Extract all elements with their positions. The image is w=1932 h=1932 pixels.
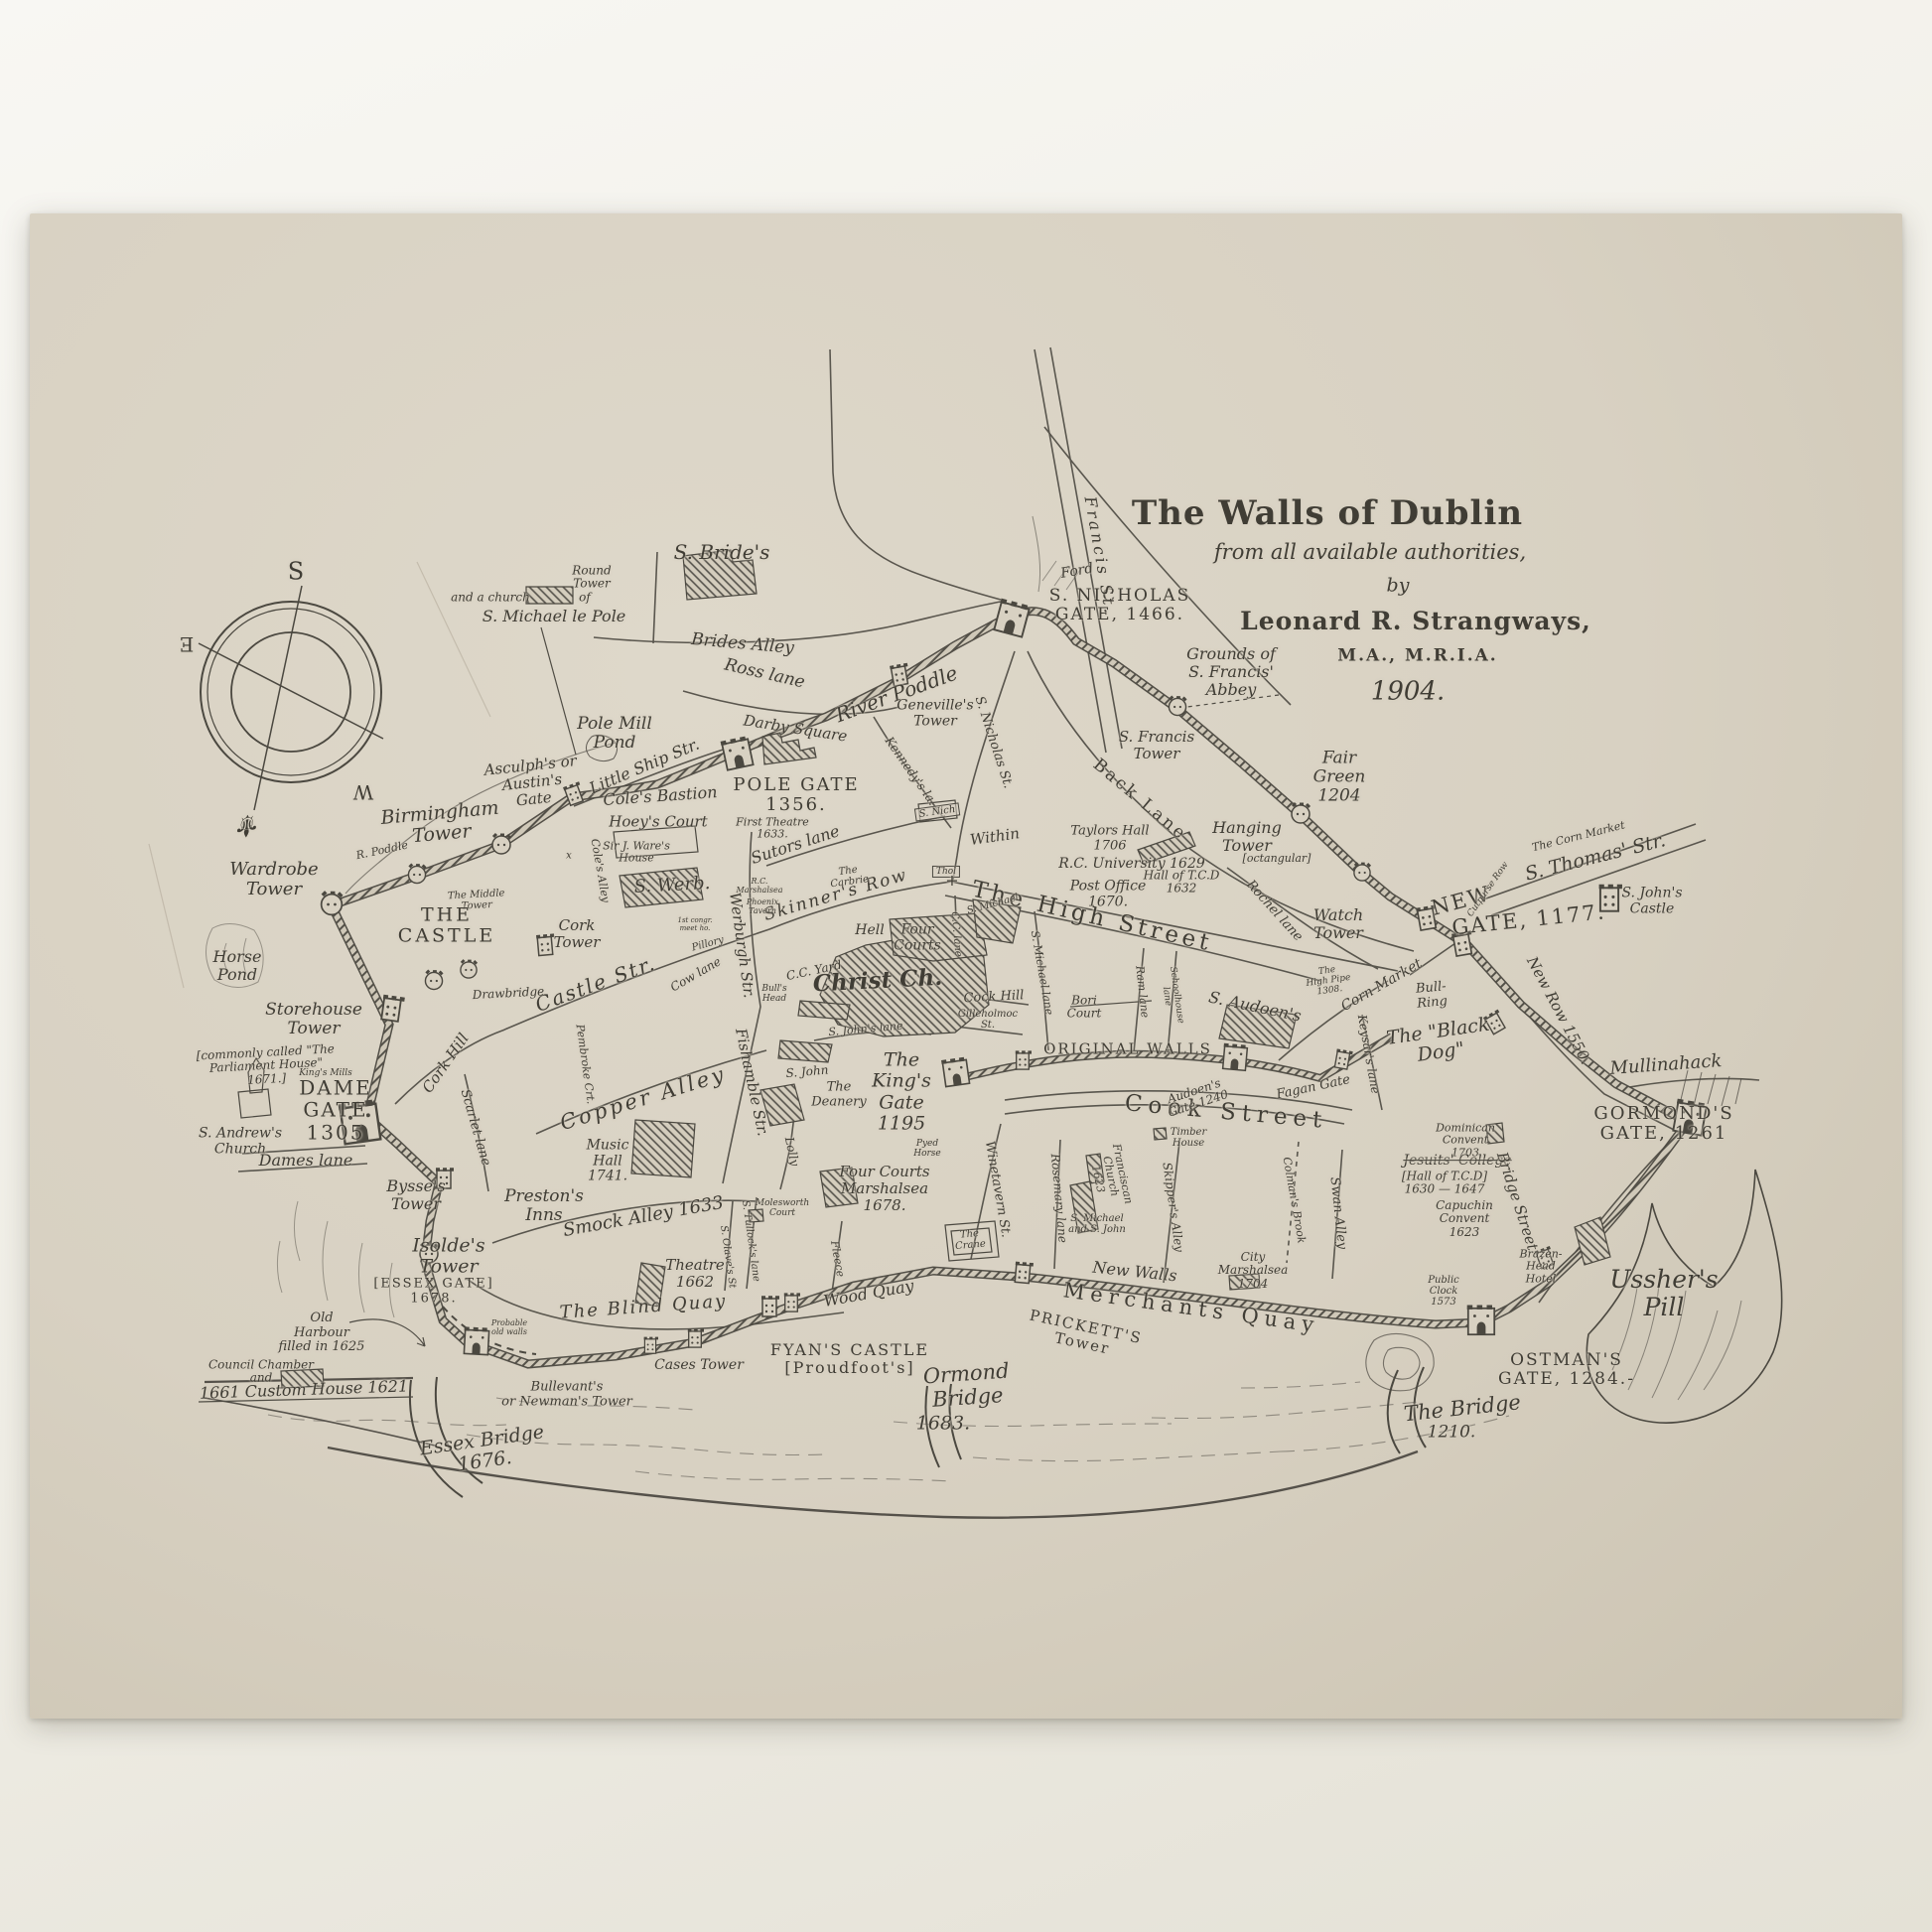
label-pillory: Pillory xyxy=(691,934,726,953)
label-schoolhouse-lane: Schoolhouse lane xyxy=(1158,966,1185,1026)
label-swan-alley: Swan Alley xyxy=(1326,1176,1348,1250)
label-bridge-street: Bridge Street xyxy=(1493,1150,1541,1252)
label-wood-quay: Wood Quay xyxy=(822,1277,915,1311)
label-parliament-house: [commonly called "The Parliament House" … xyxy=(196,1042,336,1090)
label-cork-hill: Cork Hill xyxy=(419,1031,472,1096)
label-the-deanery: The Deanery xyxy=(811,1080,867,1109)
label-fagan-gate: Fagan Gate xyxy=(1276,1073,1352,1103)
label-hanging-tower: Hanging Tower xyxy=(1212,819,1282,855)
label-rosemary-lane: Rosemary lane xyxy=(1047,1153,1068,1243)
label-pembroke-crt: Pembroke Crt. xyxy=(573,1024,596,1105)
label-s-nicholas-gate: S. NICHOLAS GATE, 1466. xyxy=(1049,587,1190,624)
label-s-nich: S. Nich xyxy=(914,802,960,821)
label-the-castle: THE CASTLE xyxy=(398,905,495,948)
label-probable-walls: Probable old walls xyxy=(491,1319,527,1337)
label-rochel-lane: Rochel lane xyxy=(1243,878,1305,944)
label-of: of xyxy=(579,591,591,604)
label-fair-green: Fair Green 1204 xyxy=(1313,749,1366,805)
label-s-john: S. John xyxy=(785,1063,829,1080)
label-wardrobe-tower: Wardrobe Tower xyxy=(229,860,318,899)
label-ushers-pill: Ussher's Pill xyxy=(1609,1266,1718,1321)
label-round-tower: Round Tower xyxy=(572,565,611,592)
fleur-de-lis-icon: ⚜ xyxy=(233,805,265,843)
label-essex-gate: [ESSEX GATE] 1678. xyxy=(373,1277,493,1306)
label-bull-ring: Bull- Ring xyxy=(1415,980,1448,1012)
label-s-michael-lane: S. Michael lane xyxy=(1028,930,1054,1017)
label-bulls-head: Bull's Head xyxy=(761,984,786,1004)
label-grounds-abbey: Grounds of S. Francis' Abbey xyxy=(1186,645,1276,699)
label-cork-tower: Cork Tower xyxy=(554,917,601,951)
label-franciscan-church: Franciscan Church 1623 xyxy=(1086,1143,1135,1210)
label-storehouse-tower: Storehouse Tower xyxy=(265,1001,362,1038)
label-taylors-hall: Taylors Hall 1706 xyxy=(1070,824,1149,853)
label-x-mark: x xyxy=(566,850,572,861)
label-s-michael-and-john: S. Michael and S. John xyxy=(1068,1213,1126,1235)
label-four-courts: Four Courts xyxy=(894,922,941,953)
label-s-audoens: S. Audoen's xyxy=(1207,988,1303,1025)
label-cow-lane: Cow lane xyxy=(668,955,724,995)
label-phoenix-tavern: Phoenix Tavern xyxy=(747,898,778,916)
label-brazen-head: Brazen- Head Hotel xyxy=(1519,1249,1562,1286)
label-pricketts-tower: PRICKETT'S Tower xyxy=(1025,1308,1144,1364)
label-bullevants-tower: Bullevant's or Newman's Tower xyxy=(501,1380,632,1409)
label-watch-tower: Watch Tower xyxy=(1313,906,1363,942)
label-music-hall: Music Hall 1741. xyxy=(587,1138,629,1184)
label-cases-tower: Cases Tower xyxy=(654,1358,744,1374)
label-theatre-1662: Theatre 1662 xyxy=(665,1257,725,1291)
map-byline: by xyxy=(1387,575,1410,596)
label-mullinahack: Mullinahack xyxy=(1609,1051,1723,1079)
label-within: Within xyxy=(969,825,1021,849)
label-isoldes-tower: Isolde's Tower xyxy=(412,1236,484,1279)
label-high-pipe: The High Pipe 1308. xyxy=(1305,963,1353,999)
label-colmans-brook: Colman's Brook xyxy=(1280,1157,1307,1245)
label-castle-str: Castle Str. xyxy=(532,952,659,1017)
map-year: 1904. xyxy=(1371,677,1445,706)
label-ostmans-gate: OSTMAN'S GATE, 1284.- xyxy=(1498,1351,1635,1389)
label-s-brides: S. Bride's xyxy=(674,541,770,563)
label-sir-wares-house: Sir J. Ware's House xyxy=(603,841,670,866)
label-scarlet-lane: Scarlet lane xyxy=(457,1088,492,1168)
label-capuchin-convent: Capuchin Convent 1623 xyxy=(1436,1199,1493,1239)
label-hell: Hell xyxy=(855,923,884,939)
label-cock-hill: Cock Hill xyxy=(963,989,1025,1007)
label-molesworth-court: Molesworth Court xyxy=(756,1198,809,1218)
label-the-crane: The Crane xyxy=(954,1228,987,1253)
label-coles-bastion: Cole's Bastion xyxy=(603,783,718,809)
label-bori-court: Bori Court xyxy=(1067,995,1102,1022)
label-s-francis-tower: S. Francis Tower xyxy=(1119,729,1194,762)
label-city-marshalsea: City Marshalsea 1704 xyxy=(1218,1251,1288,1291)
label-ford: Ford xyxy=(1059,561,1094,582)
label-dame-gate: DAME GATE 1305 xyxy=(299,1076,372,1143)
label-s-nicholas-st: S. Nicholas St. xyxy=(971,695,1015,790)
label-kings-mills: King's Mills xyxy=(299,1068,352,1078)
map-author: Leonard R. Strangways, xyxy=(1240,608,1591,635)
label-s-johns-lane: S. John's lane xyxy=(828,1021,903,1039)
map-subtitle: from all available authorities, xyxy=(1214,541,1526,565)
label-gormonds-gate: GORMOND'S GATE, 1261 xyxy=(1593,1104,1733,1144)
label-keysars-lane: Keysar's lane xyxy=(1354,1014,1381,1095)
label-pole-mill-pond: Pole Mill Pond xyxy=(577,715,652,753)
label-blind-quay: The Blind Quay xyxy=(559,1292,728,1323)
label-pole-gate: POLE GATE 1356. xyxy=(733,775,859,815)
label-kings-gate: The King's Gate 1195 xyxy=(872,1049,931,1134)
label-winetavern-st: Winetavern St. xyxy=(981,1140,1012,1238)
label-pyed-horse: Pyed Horse xyxy=(913,1139,941,1159)
compass-south: S xyxy=(288,559,306,586)
label-horse-pond: Horse Pond xyxy=(213,948,262,984)
label-s-johns-castle: S. John's Castle xyxy=(1621,886,1682,916)
label-ormond-bridge: Ormond Bridge xyxy=(922,1360,1012,1413)
label-genevilles-tower: Geneville's Tower xyxy=(897,698,973,729)
label-public-clock: Public Clock 1573 xyxy=(1428,1275,1459,1309)
label-gilleholmoc: Gilleholmoc St. xyxy=(958,1009,1018,1031)
label-s-werb: S. Werb. xyxy=(633,874,711,897)
label-michael-le-pole: S. Michael le Pole xyxy=(483,608,626,625)
label-rc-marshalsea: R.C. Marshalsea xyxy=(737,878,783,896)
label-new-walls: New Walls xyxy=(1092,1259,1178,1286)
label-old-harbour: Old Harbour filled in 1625 xyxy=(279,1311,365,1355)
label-congr-house: 1st congr. meet ho. xyxy=(677,917,712,933)
label-fleece-alley: Fleece xyxy=(828,1240,847,1278)
label-smock-alley: Smock Alley 1633 xyxy=(562,1193,726,1241)
map-author-degrees: M.A., M.R.I.A. xyxy=(1337,646,1497,665)
map-title: The Walls of Dublin xyxy=(1132,494,1523,532)
label-and-a-church: and a church xyxy=(451,591,530,604)
label-bridge-1210: 1210. xyxy=(1428,1423,1476,1442)
label-bysses-tower: Bysse's Tower xyxy=(386,1177,445,1213)
label-timber-house: Timber House xyxy=(1171,1127,1206,1149)
map-labels: The Walls of Dublin from all available a… xyxy=(0,0,1932,1932)
label-kennedys-lane: Kennedy's la. xyxy=(882,735,938,808)
label-ormond-1683: 1683. xyxy=(916,1413,970,1434)
label-essex-bridge: Essex Bridge 1676. xyxy=(419,1422,549,1481)
label-dames-lane: Dames lane xyxy=(259,1152,353,1170)
label-cc-lane: C.C. lane xyxy=(948,911,963,957)
label-fishamble-str: Fishamble Str. xyxy=(732,1027,770,1137)
compass-east: E xyxy=(178,633,195,655)
label-black-dog: The "Black Dog" xyxy=(1385,1015,1493,1071)
label-ram-lane: Ram lane xyxy=(1133,965,1151,1019)
label-darby-square: Darby Square xyxy=(743,712,849,745)
label-octangular: [octangular] xyxy=(1243,853,1311,865)
label-new-row: New Row 1550. xyxy=(1523,954,1593,1067)
label-birmingham-tower: Birmingham Tower xyxy=(380,798,501,851)
label-hoeys-court: Hoey's Court xyxy=(609,814,707,831)
label-fyans-castle: FYAN'S CASTLE [Proudfoot's] xyxy=(770,1341,929,1377)
label-original-walls: ORIGINAL WALLS xyxy=(1043,1041,1212,1058)
label-lolly: Lolly xyxy=(781,1136,800,1168)
label-ross-lane: Ross lane xyxy=(723,655,807,692)
compass-west: W xyxy=(351,781,374,803)
product-photo: The Walls of Dublin from all available a… xyxy=(0,0,1932,1932)
label-four-courts-marshalsea: Four Courts Marshalsea 1678. xyxy=(839,1164,929,1213)
label-brides-alley: Brides Alley xyxy=(690,630,794,658)
label-hall-tcd-2: [Hall of T.C.D] 1630 — 1647 xyxy=(1402,1171,1487,1197)
label-market-cross: + xyxy=(945,872,958,890)
label-skippers-alley: Skipper's Alley xyxy=(1160,1162,1185,1253)
label-hall-of-tcd: Hall of T.C.D 1632 xyxy=(1144,870,1220,897)
